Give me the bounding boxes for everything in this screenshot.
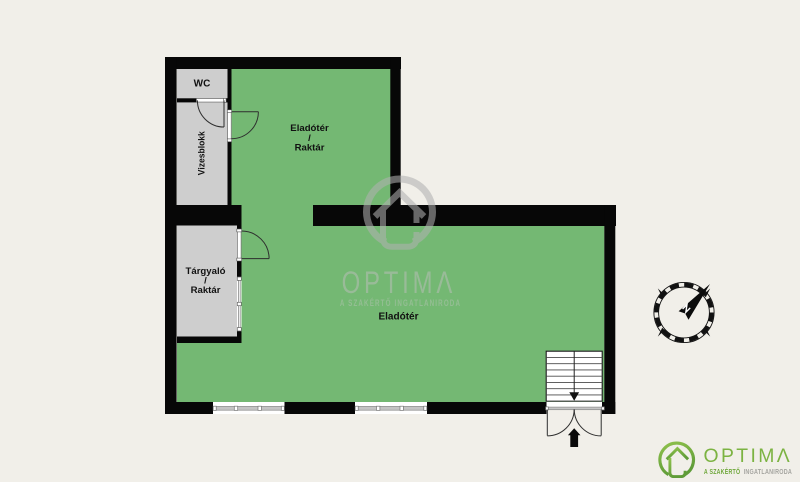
svg-text:Vizesblokk: Vizesblokk <box>195 130 206 175</box>
svg-text:A SZAKÉRTŐ: A SZAKÉRTŐ <box>704 467 740 476</box>
svg-text:Raktár: Raktár <box>295 142 325 153</box>
svg-text:A SZAKÉRTŐ INGATLANIRODA: A SZAKÉRTŐ INGATLANIRODA <box>340 297 461 308</box>
svg-text:OPTIMΛ: OPTIMΛ <box>342 264 457 300</box>
svg-text:WC: WC <box>194 79 211 90</box>
svg-text:Raktár: Raktár <box>191 285 221 296</box>
svg-text:OPTIMΛ: OPTIMΛ <box>704 445 793 467</box>
svg-text:Eladótér: Eladótér <box>378 312 418 323</box>
svg-text:INGATLANIRODA: INGATLANIRODA <box>744 467 793 476</box>
